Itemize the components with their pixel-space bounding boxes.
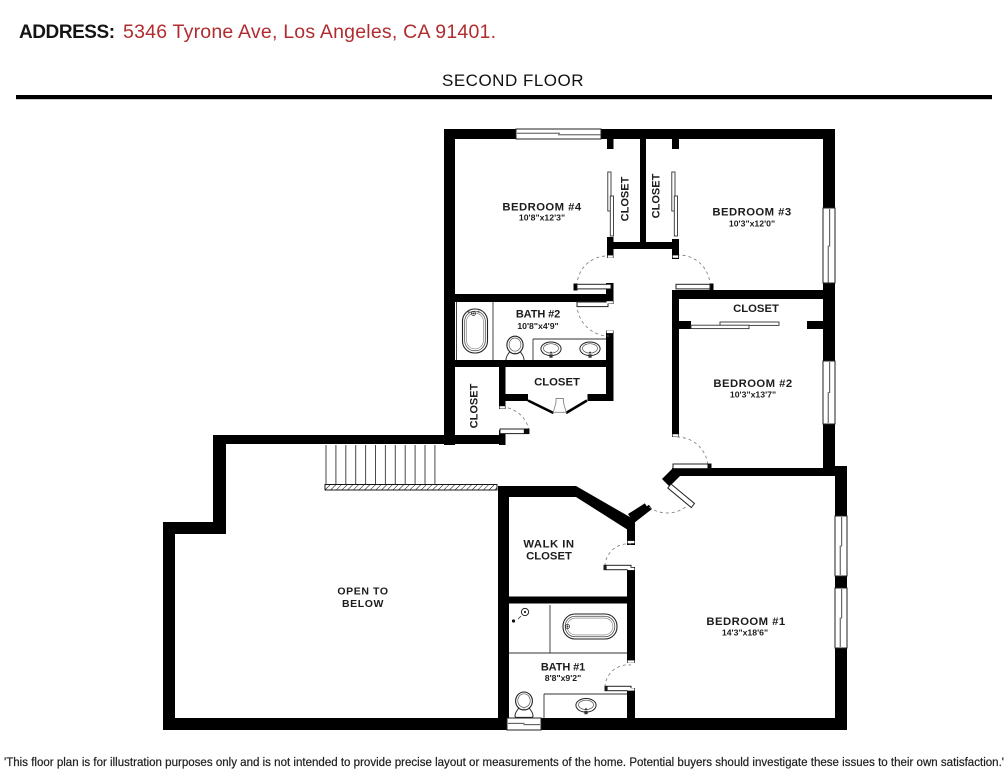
- svg-text:CLOSET: CLOSET: [534, 377, 580, 389]
- svg-text:BATH #2: BATH #2: [516, 309, 560, 321]
- svg-text:BELOW: BELOW: [342, 598, 384, 610]
- svg-text:BEDROOM #3: BEDROOM #3: [712, 207, 791, 219]
- svg-text:CLOSET: CLOSET: [469, 383, 481, 428]
- svg-text:14'3"x18'6": 14'3"x18'6": [722, 628, 768, 638]
- svg-text:BEDROOM #2: BEDROOM #2: [713, 378, 792, 390]
- svg-text:CLOSET: CLOSET: [733, 303, 779, 315]
- svg-text:CLOSET: CLOSET: [620, 176, 632, 221]
- svg-text:BATH #1: BATH #1: [541, 662, 585, 674]
- svg-text:SECOND FLOOR: SECOND FLOOR: [442, 71, 584, 90]
- svg-text:10'8"x12'3": 10'8"x12'3": [519, 213, 565, 223]
- svg-text:10'3"x13'7": 10'3"x13'7": [730, 390, 776, 400]
- svg-text:WALK IN: WALK IN: [523, 539, 574, 551]
- svg-text:'This floor plan is for illust: 'This floor plan is for illustration pur…: [4, 755, 1004, 769]
- svg-text:CLOSET: CLOSET: [651, 173, 663, 218]
- svg-text:BEDROOM #1: BEDROOM #1: [706, 616, 785, 628]
- svg-text:10'8"x4'9": 10'8"x4'9": [517, 321, 558, 331]
- svg-text:ADDRESS:: ADDRESS:: [19, 22, 115, 43]
- svg-text:10'3"x12'0": 10'3"x12'0": [729, 219, 775, 229]
- svg-text:OPEN TO: OPEN TO: [337, 586, 388, 598]
- svg-text:CLOSET: CLOSET: [526, 551, 572, 563]
- svg-text:5346 Tyrone Ave, Los Angeles,: 5346 Tyrone Ave, Los Angeles, CA 91401.: [123, 21, 496, 43]
- svg-text:8'8"x9'2": 8'8"x9'2": [545, 673, 582, 683]
